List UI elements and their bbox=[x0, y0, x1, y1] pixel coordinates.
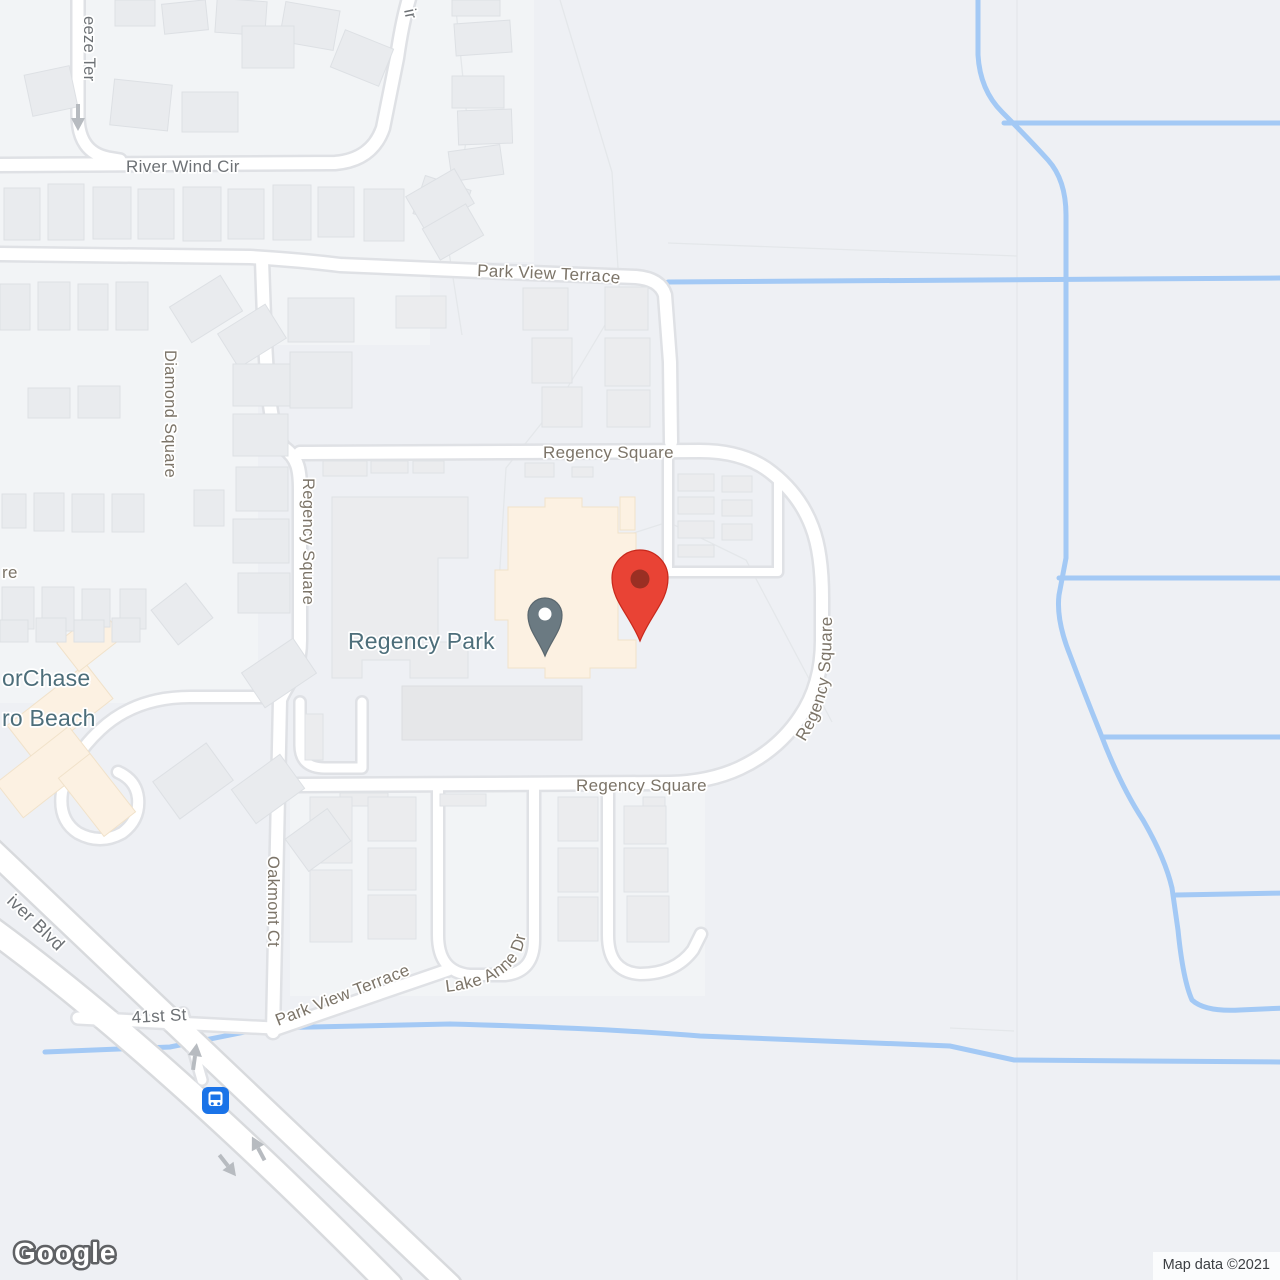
street-label-diamond-square: Diamond Square bbox=[161, 350, 179, 478]
street-label-river-wind-cir: River Wind Cir bbox=[126, 157, 240, 176]
map-attribution: Map data ©2021 bbox=[1153, 1252, 1280, 1280]
map-viewport[interactable]: eeze Ter River Wind Cir ir Park View Ter… bbox=[0, 0, 1280, 1280]
clipped-place-label-line1: orChase bbox=[2, 665, 90, 691]
map-canvas[interactable]: eeze Ter River Wind Cir ir Park View Ter… bbox=[0, 0, 1280, 1280]
street-label-regency-square-top: Regency Square bbox=[543, 443, 674, 462]
street-label-41st-st: 41st St bbox=[131, 1005, 187, 1027]
street-label-regency-square-bottom: Regency Square bbox=[576, 776, 707, 795]
clipped-place-label-line2: ro Beach bbox=[2, 705, 96, 731]
google-logo[interactable]: Google bbox=[14, 1237, 116, 1268]
street-label-partial-re: re bbox=[2, 563, 18, 582]
street-label-regency-square-west: Regency Square bbox=[299, 478, 317, 605]
poi-label-regency-park[interactable]: Regency Park bbox=[348, 628, 495, 654]
street-label-breeze-ter: eeze Ter bbox=[80, 16, 98, 82]
street-label-oakmont-ct: Oakmont Ct bbox=[264, 856, 282, 947]
bus-station-icon[interactable] bbox=[202, 1087, 229, 1114]
